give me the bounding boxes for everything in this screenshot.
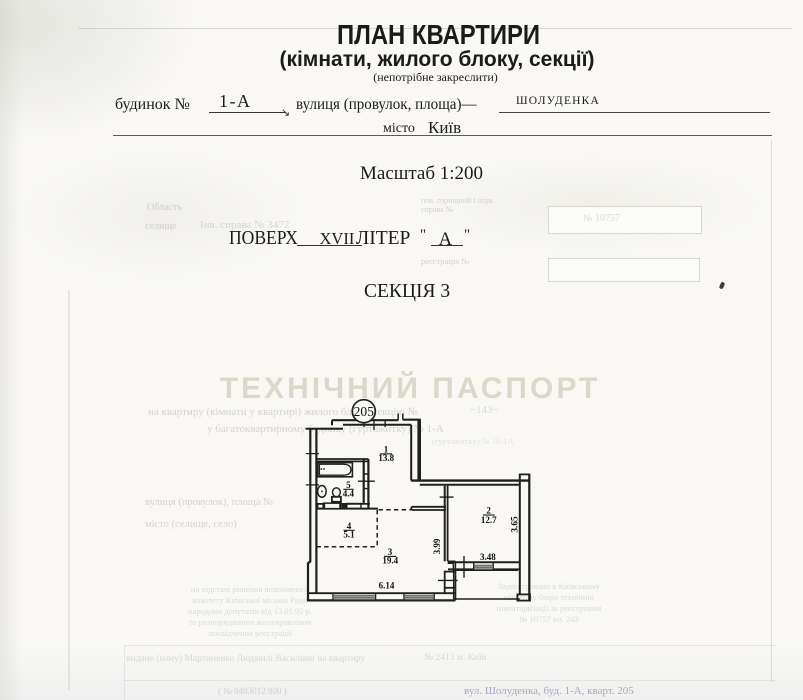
svg-text:3.65: 3.65 [511,516,521,533]
svg-text:2: 2 [486,505,491,515]
svg-text:19.4: 19.4 [382,556,398,566]
svg-text:5.1: 5.1 [343,530,355,540]
svg-text:6.14: 6.14 [379,580,395,590]
svg-text:3.99: 3.99 [432,538,442,554]
svg-text:3.48: 3.48 [480,552,496,562]
svg-text:4.4: 4.4 [343,489,355,499]
svg-text:205: 205 [354,404,375,419]
svg-text:12.7: 12.7 [481,515,497,525]
svg-text:13.8: 13.8 [378,453,394,463]
